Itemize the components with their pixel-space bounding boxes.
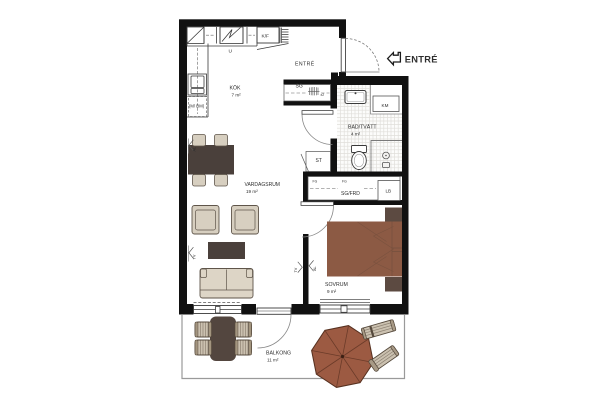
svg-text:11 m²: 11 m² [267,358,279,363]
svg-text:K/F: K/F [262,34,270,40]
svg-text:ENTRÉ: ENTRÉ [295,61,315,68]
svg-text:4 m²: 4 m² [351,132,361,137]
svg-text:AL: AL [193,147,197,152]
svg-text:U: U [229,49,233,55]
svg-text:9 m²: 9 m² [327,289,337,294]
svg-text:19 m²: 19 m² [246,189,258,194]
svg-text:(M/ DM): (M/ DM) [189,104,205,109]
svg-text:SOVRUM: SOVRUM [325,282,348,288]
svg-text:ST: ST [316,158,322,164]
svg-text:FG: FG [342,180,347,184]
svg-text:BALKONG: BALKONG [266,351,291,357]
svg-text:LB: LB [386,189,392,194]
svg-text:SG: SG [296,84,303,90]
svg-text:KM: KM [382,103,389,108]
svg-text:ENTRÉ: ENTRÉ [405,54,438,64]
svg-text:x2: x2 [321,93,325,97]
svg-text:TV: TV [294,267,298,272]
svg-text:AL: AL [313,266,317,271]
svg-text:7 m²: 7 m² [232,93,242,98]
svg-text:TV: TV [193,254,197,259]
svg-text:FG: FG [313,180,318,184]
svg-text:KÖK: KÖK [230,85,241,92]
svg-text:BAD/TVÄTT: BAD/TVÄTT [348,124,377,131]
svg-text:SG/FRD: SG/FRD [341,191,360,197]
svg-text:VARDAGSRUM: VARDAGSRUM [245,182,280,188]
